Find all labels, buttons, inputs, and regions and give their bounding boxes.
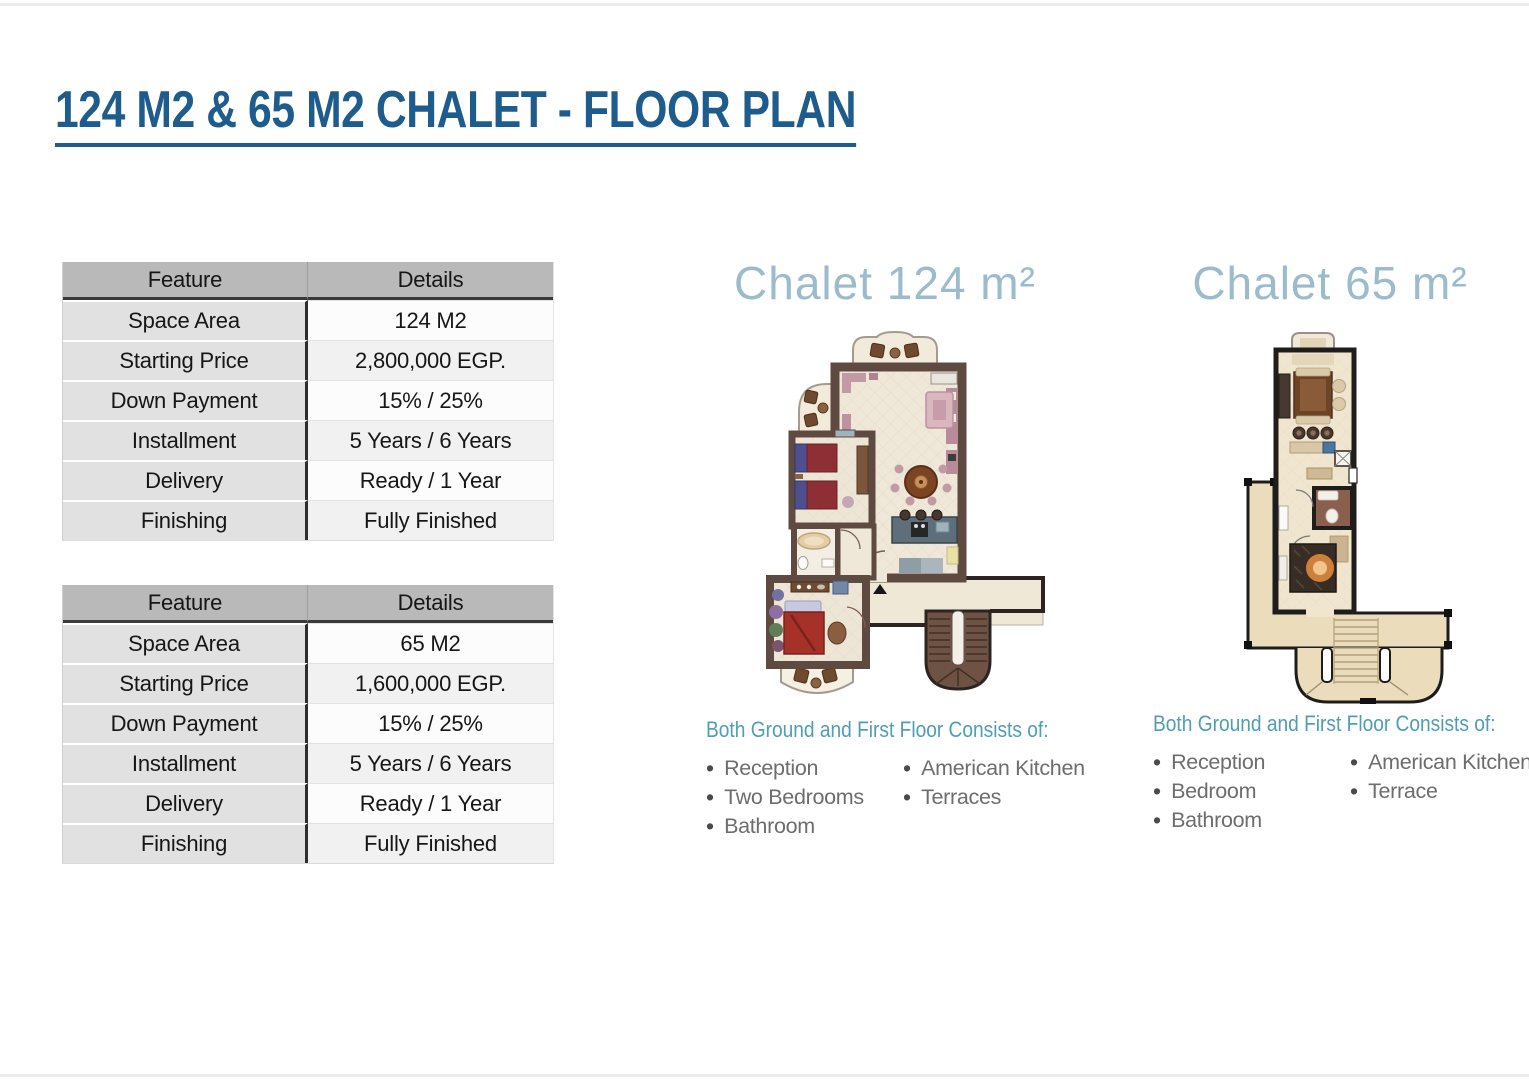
bullet-icon: •	[903, 757, 911, 780]
bullet-icon: •	[706, 757, 714, 780]
table-header-row: Feature Details	[63, 585, 553, 623]
bullet-icon: •	[1153, 809, 1161, 832]
details-cell: 5 Years / 6 Years	[308, 420, 553, 460]
entry-arch-65	[1292, 333, 1334, 350]
feature-cell: Delivery	[63, 460, 308, 500]
list-item: •Reception	[706, 754, 903, 783]
table-row: Delivery Ready / 1 Year	[63, 460, 553, 500]
features-list-primary: •Reception •Two Bedrooms •Bathroom	[706, 754, 903, 841]
table-row: Down Payment 15% / 25%	[63, 380, 553, 420]
list-item: •American Kitchen	[1350, 748, 1529, 777]
hallway	[838, 526, 874, 578]
details-cell: 2,800,000 EGP.	[308, 340, 553, 380]
feature-cell: Installment	[63, 743, 308, 783]
column-header-details: Details	[308, 585, 553, 623]
details-cell: Fully Finished	[308, 500, 553, 540]
floor-plan-124-image	[735, 330, 1065, 710]
list-item: •Reception	[1153, 748, 1350, 777]
table-row: Finishing Fully Finished	[63, 500, 553, 540]
list-item-label: Bathroom	[724, 814, 815, 839]
list-item: •Terraces	[903, 783, 1085, 812]
bullet-icon: •	[1350, 751, 1358, 774]
consists-heading: Both Ground and First Floor Consists of:	[1153, 711, 1484, 737]
pricing-table-124: Feature Details Space Area 124 M2 Starti…	[62, 262, 554, 541]
table-row: Installment 5 Years / 6 Years	[63, 743, 553, 783]
feature-cell: Starting Price	[63, 340, 308, 380]
details-cell: Ready / 1 Year	[308, 460, 553, 500]
terrace-left	[799, 384, 835, 434]
unit-65	[1276, 350, 1357, 617]
list-item: •Bathroom	[1153, 806, 1350, 835]
page-top-edge	[0, 3, 1529, 6]
details-cell: 124 M2	[308, 300, 553, 340]
bullet-icon: •	[1153, 751, 1161, 774]
details-cell: Ready / 1 Year	[308, 783, 553, 823]
feature-cell: Delivery	[63, 783, 308, 823]
bullet-icon: •	[706, 786, 714, 809]
page-bottom-edge	[0, 1074, 1529, 1077]
table-row: Down Payment 15% / 25%	[63, 703, 553, 743]
table-header-row: Feature Details	[63, 262, 553, 300]
list-item: •Bedroom	[1153, 777, 1350, 806]
list-item-label: American Kitchen	[1368, 750, 1529, 775]
feature-cell: Space Area	[63, 300, 308, 340]
page-title: 124 M2 & 65 M2 CHALET - FLOOR PLAN	[55, 84, 856, 147]
column-header-details: Details	[308, 262, 553, 300]
list-item-label: Bathroom	[1171, 808, 1262, 833]
bedroom-upper	[792, 430, 872, 526]
consists-block-124: Both Ground and First Floor Consists of:…	[706, 717, 1106, 841]
features-list-primary: •Reception •Bedroom •Bathroom	[1153, 748, 1350, 835]
feature-cell: Starting Price	[63, 663, 308, 703]
column-header-feature: Feature	[63, 262, 308, 300]
floor-plan-65-image	[1230, 330, 1455, 710]
list-item-label: Reception	[724, 756, 818, 781]
feature-cell: Space Area	[63, 623, 308, 663]
table-row: Space Area 124 M2	[63, 300, 553, 340]
table-row: Starting Price 2,800,000 EGP.	[63, 340, 553, 380]
list-item-label: Bedroom	[1171, 779, 1256, 804]
details-cell: 15% / 25%	[308, 380, 553, 420]
details-cell: 1,600,000 EGP.	[308, 663, 553, 703]
bedroom-lower	[769, 579, 866, 665]
pricing-table-65: Feature Details Space Area 65 M2 Startin…	[62, 585, 554, 864]
table-row: Finishing Fully Finished	[63, 823, 553, 863]
list-item-label: Reception	[1171, 750, 1265, 775]
details-cell: Fully Finished	[308, 823, 553, 863]
list-item-label: Terrace	[1368, 779, 1438, 804]
table-row: Delivery Ready / 1 Year	[63, 783, 553, 823]
list-item: •Bathroom	[706, 812, 903, 841]
bathroom	[794, 526, 838, 578]
feature-cell: Down Payment	[63, 703, 308, 743]
bullet-icon: •	[903, 786, 911, 809]
bullet-icon: •	[706, 815, 714, 838]
feature-cell: Finishing	[63, 823, 308, 863]
list-item-label: Terraces	[921, 785, 1001, 810]
list-item: •American Kitchen	[903, 754, 1085, 783]
bullet-icon: •	[1153, 780, 1161, 803]
list-item: •Two Bedrooms	[706, 783, 903, 812]
table-row: Space Area 65 M2	[63, 623, 553, 663]
feature-cell: Installment	[63, 420, 308, 460]
feature-cell: Down Payment	[63, 380, 308, 420]
list-item-label: Two Bedrooms	[724, 785, 864, 810]
feature-cell: Finishing	[63, 500, 308, 540]
details-cell: 15% / 25%	[308, 703, 553, 743]
table-row: Installment 5 Years / 6 Years	[63, 420, 553, 460]
consists-block-65: Both Ground and First Floor Consists of:…	[1153, 711, 1529, 835]
table-row: Starting Price 1,600,000 EGP.	[63, 663, 553, 703]
features-list-secondary: •American Kitchen •Terraces	[903, 754, 1085, 841]
details-cell: 65 M2	[308, 623, 553, 663]
plan-title-124: Chalet 124 m²	[690, 258, 1080, 309]
details-cell: 5 Years / 6 Years	[308, 743, 553, 783]
features-list-secondary: •American Kitchen •Terrace	[1350, 748, 1529, 835]
bullet-icon: •	[1350, 780, 1358, 803]
plan-title-65: Chalet 65 m²	[1150, 258, 1510, 309]
list-item-label: American Kitchen	[921, 756, 1085, 781]
column-header-feature: Feature	[63, 585, 308, 623]
consists-heading: Both Ground and First Floor Consists of:	[706, 717, 1054, 743]
staircase	[926, 611, 990, 689]
list-item: •Terrace	[1350, 777, 1529, 806]
